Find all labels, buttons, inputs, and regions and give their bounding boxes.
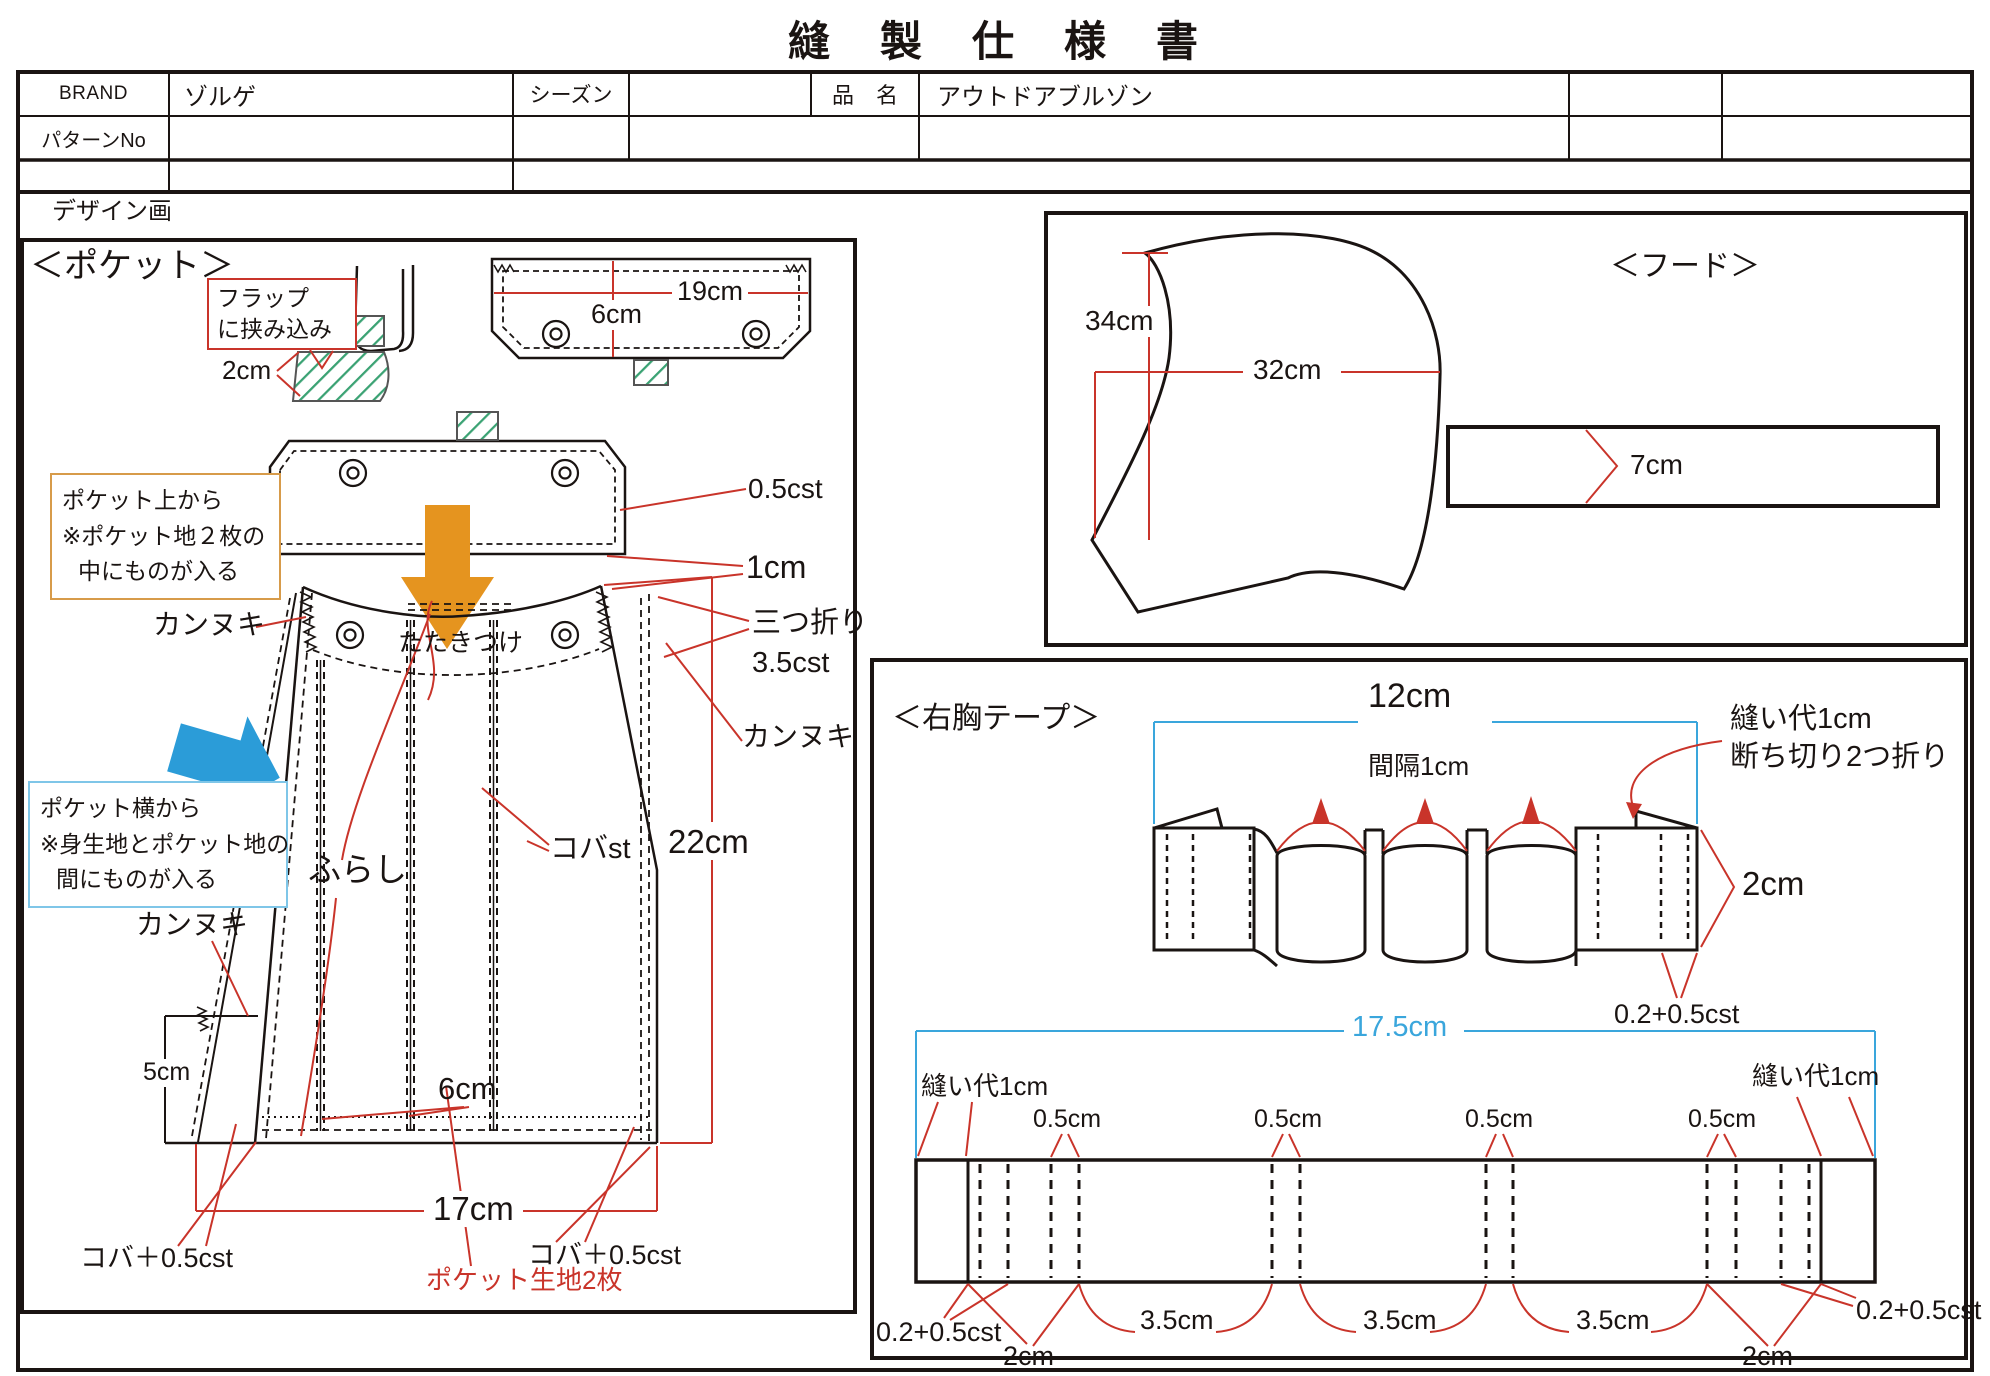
dim-2cm-tape-top: 2cm bbox=[1742, 866, 1804, 902]
tape-seam-note: 縫い代1cm 断ち切り2つ折り bbox=[1730, 700, 1949, 777]
dim-1cm: 1cm bbox=[746, 550, 806, 585]
dim-2cm-bottom-left: 2cm bbox=[1003, 1342, 1054, 1372]
dim-34cm: 34cm bbox=[1080, 306, 1158, 337]
pattern-no-label: パターンNo bbox=[18, 116, 169, 160]
seam-allowance-left: 縫い代1cm bbox=[921, 1072, 1048, 1101]
item-name-value: アウトドアブルゾン bbox=[937, 72, 1153, 116]
kannuki-bottom-left: カンヌキ bbox=[136, 910, 248, 941]
hood-drawing bbox=[1092, 234, 1938, 612]
diagram-lines-layer bbox=[0, 0, 1990, 1376]
dim-175cm: 17.5cm bbox=[1352, 1012, 1447, 1044]
hood-heading: ＜フード＞ bbox=[1610, 250, 1760, 283]
dim-19cm: 19cm bbox=[672, 277, 748, 307]
dim-5cm: 5cm bbox=[138, 1059, 195, 1087]
season-label: シーズン bbox=[513, 72, 629, 116]
st-35cst: 3.5cst bbox=[752, 648, 829, 680]
pocket-panel-border bbox=[22, 240, 855, 1312]
dim-35cm-2: 3.5cm bbox=[1363, 1306, 1437, 1336]
dim-2cm-bottom-right: 2cm bbox=[1742, 1342, 1793, 1372]
dim-7cm: 7cm bbox=[1630, 450, 1683, 481]
hatched-fabric-small bbox=[356, 316, 384, 346]
red-triangle-markers bbox=[1312, 796, 1540, 824]
tatakitsuke-label: たたきつけ bbox=[398, 630, 523, 658]
kannuki-right: カンヌキ bbox=[742, 722, 854, 753]
kannuki-top-left: カンヌキ bbox=[153, 610, 265, 641]
dim-6cm-flap: 6cm bbox=[586, 300, 647, 330]
seam-allowance-right: 縫い代1cm bbox=[1752, 1062, 1879, 1091]
dim-05cm-1: 0.5cm bbox=[1033, 1106, 1101, 1134]
st-0205-bottom-right: 0.2+0.5cst bbox=[1856, 1296, 1981, 1326]
dim-17cm: 17cm bbox=[428, 1191, 519, 1227]
dim-12cm: 12cm bbox=[1368, 678, 1451, 715]
furashi-label: ふらし bbox=[308, 852, 407, 888]
dim-32cm: 32cm bbox=[1248, 355, 1326, 386]
flap-insert-note: フラップ に挟み込み bbox=[207, 278, 357, 350]
dim-05cm-4: 0.5cm bbox=[1688, 1106, 1756, 1134]
dim-35cm-1: 3.5cm bbox=[1140, 1306, 1214, 1336]
hatched-tab bbox=[634, 360, 668, 385]
pocket-top-note: ポケット上から ※ポケット地２枚の 中にものが入る bbox=[50, 473, 281, 600]
brand-value: ゾルゲ bbox=[184, 72, 256, 116]
mitsuori-label: 三つ折り bbox=[752, 608, 868, 640]
item-name-label: 品 名 bbox=[811, 72, 919, 116]
dim-05cm-3: 0.5cm bbox=[1465, 1106, 1533, 1134]
koba-05cst-left: コバ＋0.5cst bbox=[80, 1244, 233, 1274]
dim-2cm: 2cm bbox=[222, 356, 271, 385]
dim-22cm: 22cm bbox=[668, 824, 749, 860]
hatched-tab bbox=[457, 412, 498, 440]
dim-6cm-bottom: 6cm bbox=[438, 1072, 497, 1106]
pocket-drawing bbox=[160, 259, 810, 1266]
hood-strip bbox=[1448, 427, 1938, 506]
design-drawing-label: デザイン画 bbox=[52, 199, 172, 225]
koba-st-label: コバst bbox=[550, 834, 631, 866]
pocket-red-dimension-lines bbox=[178, 577, 749, 1266]
dim-05cm-2: 0.5cm bbox=[1254, 1106, 1322, 1134]
pocket-fabric-note: ポケット生地2枚 bbox=[426, 1266, 622, 1295]
dim-35cm-3: 3.5cm bbox=[1576, 1306, 1650, 1336]
st-0205-top: 0.2+0.5cst bbox=[1614, 1000, 1739, 1030]
sewing-spec-sheet: 縫 製 仕 様 書 bbox=[0, 0, 1990, 1376]
tape-heading: ＜右胸テープ＞ bbox=[892, 702, 1100, 735]
pocket-side-note: ポケット横から ※身生地とポケット地の 間にものが入る bbox=[28, 781, 288, 908]
tape-spacing-note: 間隔1cm bbox=[1368, 752, 1469, 781]
st-05cst: 0.5cst bbox=[748, 474, 823, 505]
st-0205-bottom-left: 0.2+0.5cst bbox=[876, 1318, 1001, 1348]
grommets bbox=[543, 321, 769, 347]
hatched-fabric-large bbox=[293, 352, 389, 401]
pocket-heading: ＜ポケット＞ bbox=[30, 248, 234, 285]
brand-label: BRAND bbox=[18, 72, 169, 116]
